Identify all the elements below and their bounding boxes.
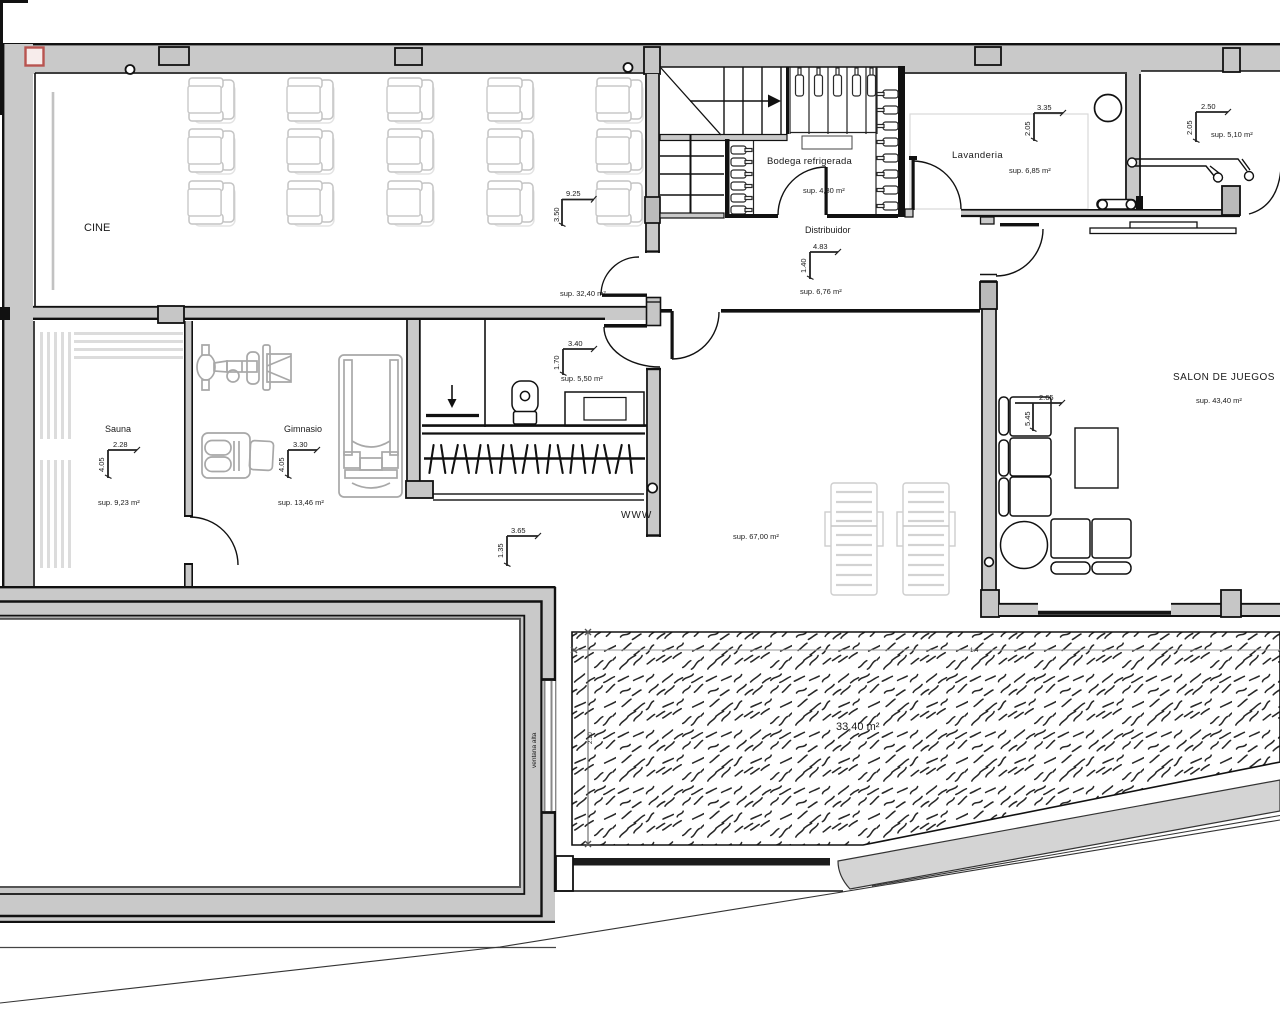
svg-text:sup. 5,10 m²: sup. 5,10 m² [1211, 130, 1253, 139]
svg-text:sup. 6,76 m²: sup. 6,76 m² [800, 287, 842, 296]
svg-text:4.05: 4.05 [97, 457, 106, 472]
svg-text:WWW: WWW [621, 510, 652, 521]
svg-text:sup. 4,80 m²: sup. 4,80 m² [803, 186, 845, 195]
svg-text:4.83: 4.83 [813, 242, 828, 251]
svg-text:3.30: 3.30 [293, 440, 308, 449]
svg-text:Sauna: Sauna [105, 424, 131, 434]
svg-text:1.70: 1.70 [552, 355, 561, 370]
svg-text:sup. 67,00 m²: sup. 67,00 m² [733, 532, 779, 541]
svg-text:Lavanderia: Lavanderia [952, 150, 1003, 161]
svg-text:2.28: 2.28 [113, 440, 128, 449]
svg-text:2.50: 2.50 [1201, 102, 1216, 111]
svg-text:1.4: 1.4 [970, 648, 979, 654]
svg-text:2.05: 2.05 [1185, 120, 1194, 135]
svg-text:2.65: 2.65 [1039, 393, 1054, 402]
svg-text:Gimnasio: Gimnasio [284, 424, 322, 434]
svg-text:sup. 9,23 m²: sup. 9,23 m² [98, 498, 140, 507]
svg-text:2.05: 2.05 [1023, 121, 1032, 136]
svg-text:1.40: 1.40 [799, 258, 808, 273]
svg-text:sup. 5,50 m²: sup. 5,50 m² [561, 374, 603, 383]
svg-text:Bodega refrigerada: Bodega refrigerada [767, 156, 852, 167]
svg-text:CINE: CINE [84, 222, 110, 234]
svg-text:sup. 43,40 m²: sup. 43,40 m² [1196, 396, 1242, 405]
svg-text:9.25: 9.25 [566, 189, 581, 198]
svg-text:3.35: 3.35 [1037, 103, 1052, 112]
svg-text:sup. 13,46 m²: sup. 13,46 m² [278, 498, 324, 507]
svg-text:2.10: 2.10 [588, 732, 594, 744]
svg-text:Distribuidor: Distribuidor [805, 225, 851, 235]
svg-text:3.65: 3.65 [511, 526, 526, 535]
svg-text:3.50: 3.50 [552, 207, 561, 222]
svg-text:sup. 32,40 m²: sup. 32,40 m² [560, 289, 606, 298]
svg-text:ventana alta: ventana alta [531, 732, 538, 768]
svg-text:SALON DE JUEGOS: SALON DE JUEGOS [1173, 372, 1275, 383]
svg-text:4.05: 4.05 [277, 457, 286, 472]
svg-text:5.45: 5.45 [1023, 411, 1032, 426]
svg-text:3.40: 3.40 [568, 339, 583, 348]
svg-text:sup. 6,85 m²: sup. 6,85 m² [1009, 166, 1051, 175]
svg-text:33,40 m²: 33,40 m² [836, 721, 880, 733]
svg-text:1.35: 1.35 [496, 543, 505, 558]
